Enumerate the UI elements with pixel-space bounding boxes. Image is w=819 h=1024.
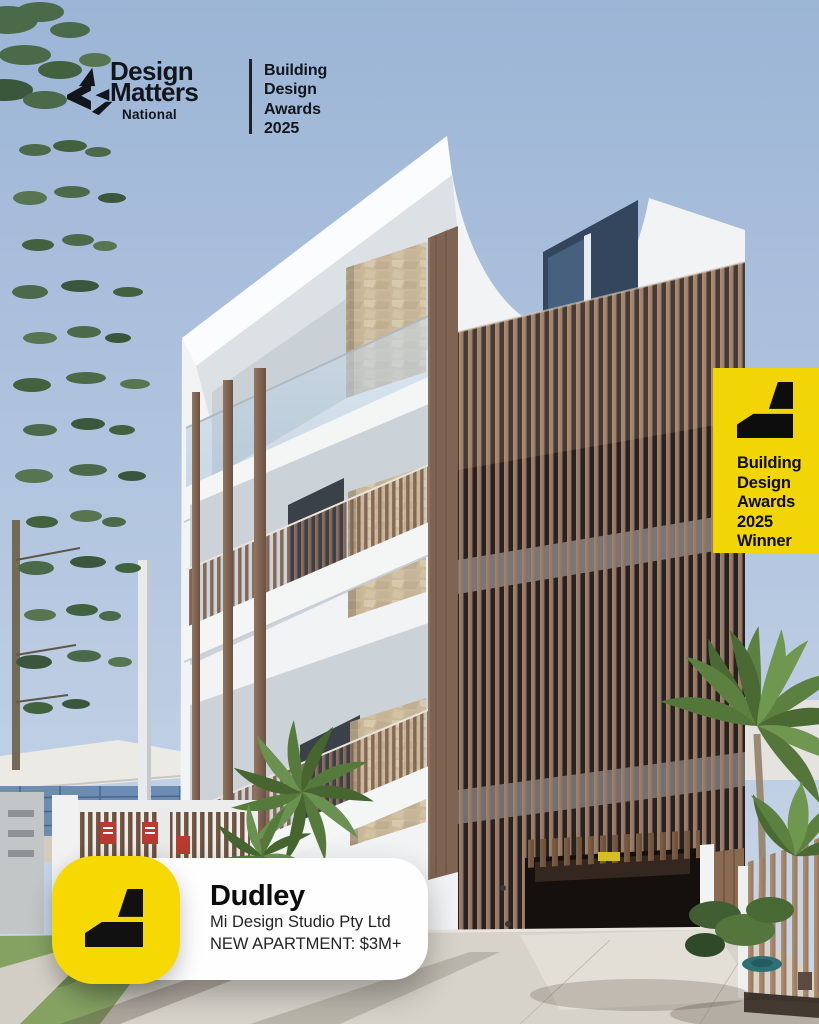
winner-badge: Building Design Awards 2025 Winner [713,368,819,553]
brand-line-2: Matters [110,82,198,103]
program-line: Design [264,80,327,99]
winner-badge-line: 2025 [737,513,819,533]
project-designer: Mi Design Studio Pty Ltd [210,911,401,933]
award-mark-icon [737,377,793,443]
brand-divider [249,59,252,134]
brand-sub: National [122,107,198,122]
awards-poster: Design Matters National Building Design … [0,0,819,1024]
brand-wordmark: Design Matters National [110,61,198,122]
project-title: Dudley [210,881,401,911]
winner-badge-line: Winner [737,532,819,552]
project-card-tile [52,856,180,984]
project-category: NEW APARTMENT: $3M+ [210,933,401,955]
winner-badge-line: Awards [737,493,819,513]
program-line: 2025 [264,119,327,138]
award-mark-icon [85,886,143,950]
design-matters-mark-icon [67,66,113,120]
program-line: Building [264,61,327,80]
project-card: Dudley Mi Design Studio Pty Ltd NEW APAR… [52,856,428,984]
project-card-text: Dudley Mi Design Studio Pty Ltd NEW APAR… [210,881,401,955]
winner-badge-line: Design [737,474,819,494]
program-lockup: Building Design Awards 2025 [264,61,327,139]
program-line: Awards [264,100,327,119]
winner-badge-line: Building [737,454,819,474]
